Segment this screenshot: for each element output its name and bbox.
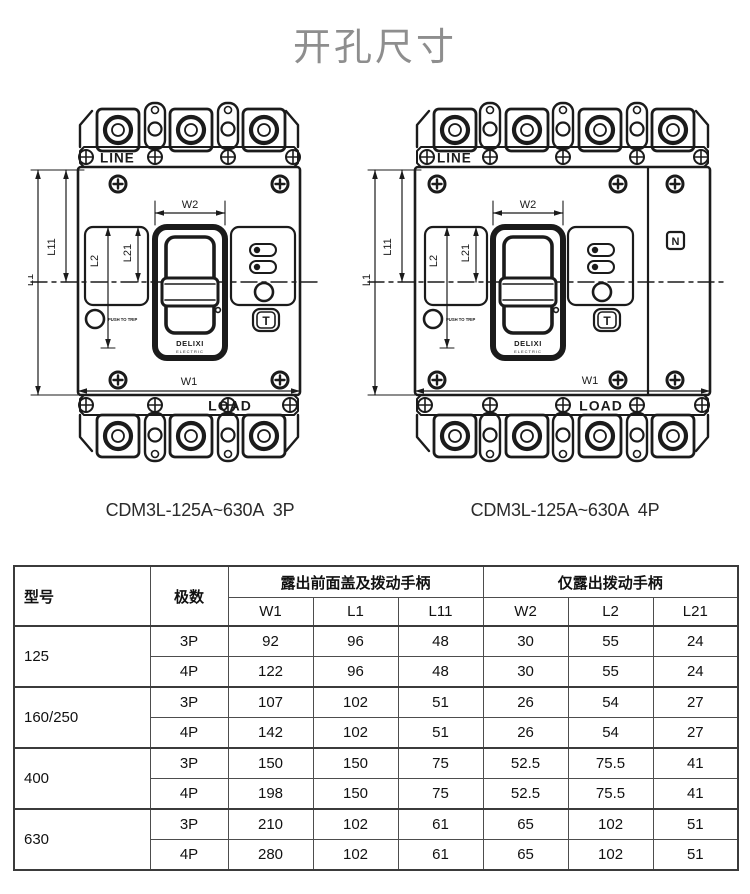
line-label: LINE (437, 151, 472, 166)
value-cell: 51 (398, 687, 483, 718)
brand-label: DELIXI (514, 339, 542, 348)
value-cell: 24 (653, 626, 738, 657)
value-cell: 52.5 (483, 779, 568, 810)
value-cell: 75 (398, 779, 483, 810)
poles-cell: 4P (150, 718, 228, 749)
dim-label-w2: W2 (182, 199, 199, 211)
value-cell: 102 (313, 718, 398, 749)
value-cell: 96 (313, 657, 398, 688)
value-cell: 107 (228, 687, 313, 718)
brand-sub-label: ELECTRIC (514, 349, 542, 354)
value-cell: 150 (313, 748, 398, 779)
dim-label-l2: L2 (89, 255, 101, 267)
value-cell: 61 (398, 809, 483, 840)
test-button-label: T (262, 314, 270, 328)
header-group2: 仅露出拨动手柄 (483, 566, 738, 598)
header-l2: L2 (568, 598, 653, 627)
caption-4p: CDM3L-125A~630A 4P (390, 500, 740, 521)
header-w1: W1 (228, 598, 313, 627)
poles-cell: 4P (150, 840, 228, 871)
poles-cell: 4P (150, 657, 228, 688)
value-cell: 26 (483, 718, 568, 749)
diagram-area: LINELOADTPUSH TO TRIPDELIXIELECTRICL1L11… (0, 0, 750, 560)
dim-label-w1: W1 (181, 376, 198, 388)
push-to-trip-label: PUSH TO TRIP (108, 317, 137, 322)
push-to-trip-label: PUSH TO TRIP (446, 317, 475, 322)
header-l11: L11 (398, 598, 483, 627)
dimension-table: 型号 极数 露出前面盖及拨动手柄 仅露出拨动手柄 W1 L1 L11 W2 L2… (13, 565, 739, 871)
value-cell: 48 (398, 626, 483, 657)
header-w2: W2 (483, 598, 568, 627)
value-cell: 65 (483, 840, 568, 871)
dim-label-l11: L11 (46, 238, 58, 256)
value-cell: 41 (653, 779, 738, 810)
value-cell: 51 (653, 840, 738, 871)
poles-cell: 3P (150, 687, 228, 718)
value-cell: 122 (228, 657, 313, 688)
header-l1: L1 (313, 598, 398, 627)
header-group1: 露出前面盖及拨动手柄 (228, 566, 483, 598)
value-cell: 142 (228, 718, 313, 749)
value-cell: 75.5 (568, 779, 653, 810)
value-cell: 30 (483, 657, 568, 688)
value-cell: 41 (653, 748, 738, 779)
brand-sub-label: ELECTRIC (176, 349, 204, 354)
breaker-4p-diagram: LINELOADTPUSH TO TRIPNDELIXIELECTRICL1L1… (350, 95, 730, 495)
value-cell: 55 (568, 657, 653, 688)
dimension-table-body: 1253P9296483055244P1229648305524160/2503… (14, 626, 738, 870)
header-model: 型号 (14, 566, 150, 626)
dim-label-w1: W1 (582, 375, 599, 387)
value-cell: 27 (653, 687, 738, 718)
load-label: LOAD (579, 398, 623, 414)
dim-label-l1: L1 (28, 274, 36, 286)
load-label: LOAD (208, 398, 252, 414)
model-cell: 125 (14, 626, 150, 687)
value-cell: 150 (313, 779, 398, 810)
value-cell: 26 (483, 687, 568, 718)
value-cell: 54 (568, 718, 653, 749)
dim-label-l21: L21 (460, 244, 472, 262)
value-cell: 48 (398, 657, 483, 688)
value-cell: 210 (228, 809, 313, 840)
poles-cell: 3P (150, 809, 228, 840)
value-cell: 280 (228, 840, 313, 871)
dim-label-l2: L2 (428, 255, 440, 267)
value-cell: 51 (398, 718, 483, 749)
test-button-label: T (603, 314, 611, 328)
header-poles: 极数 (150, 566, 228, 626)
line-label: LINE (100, 151, 135, 166)
value-cell: 75 (398, 748, 483, 779)
value-cell: 102 (568, 809, 653, 840)
value-cell: 96 (313, 626, 398, 657)
brand-label: DELIXI (176, 339, 204, 348)
value-cell: 102 (313, 687, 398, 718)
value-cell: 75.5 (568, 748, 653, 779)
value-cell: 55 (568, 626, 653, 657)
dim-label-l1: L1 (361, 274, 373, 286)
value-cell: 24 (653, 657, 738, 688)
model-cell: 160/250 (14, 687, 150, 748)
value-cell: 54 (568, 687, 653, 718)
dim-label-l21: L21 (122, 244, 134, 262)
dim-label-w2: W2 (520, 199, 537, 211)
value-cell: 52.5 (483, 748, 568, 779)
value-cell: 102 (313, 809, 398, 840)
poles-cell: 3P (150, 748, 228, 779)
value-cell: 92 (228, 626, 313, 657)
value-cell: 102 (313, 840, 398, 871)
neutral-label: N (672, 236, 680, 248)
caption-3p: CDM3L-125A~630A 3P (28, 500, 372, 521)
value-cell: 150 (228, 748, 313, 779)
value-cell: 65 (483, 809, 568, 840)
model-cell: 630 (14, 809, 150, 870)
value-cell: 27 (653, 718, 738, 749)
value-cell: 51 (653, 809, 738, 840)
value-cell: 61 (398, 840, 483, 871)
page: 开孔尺寸 LINELOADTPUSH TO TRIPDELIXIELECTRIC… (0, 0, 750, 894)
value-cell: 30 (483, 626, 568, 657)
model-cell: 400 (14, 748, 150, 809)
poles-cell: 3P (150, 626, 228, 657)
value-cell: 102 (568, 840, 653, 871)
header-l21: L21 (653, 598, 738, 627)
value-cell: 198 (228, 779, 313, 810)
breaker-3p-diagram: LINELOADTPUSH TO TRIPDELIXIELECTRICL1L11… (28, 95, 373, 495)
dim-label-l11: L11 (382, 238, 394, 256)
poles-cell: 4P (150, 779, 228, 810)
